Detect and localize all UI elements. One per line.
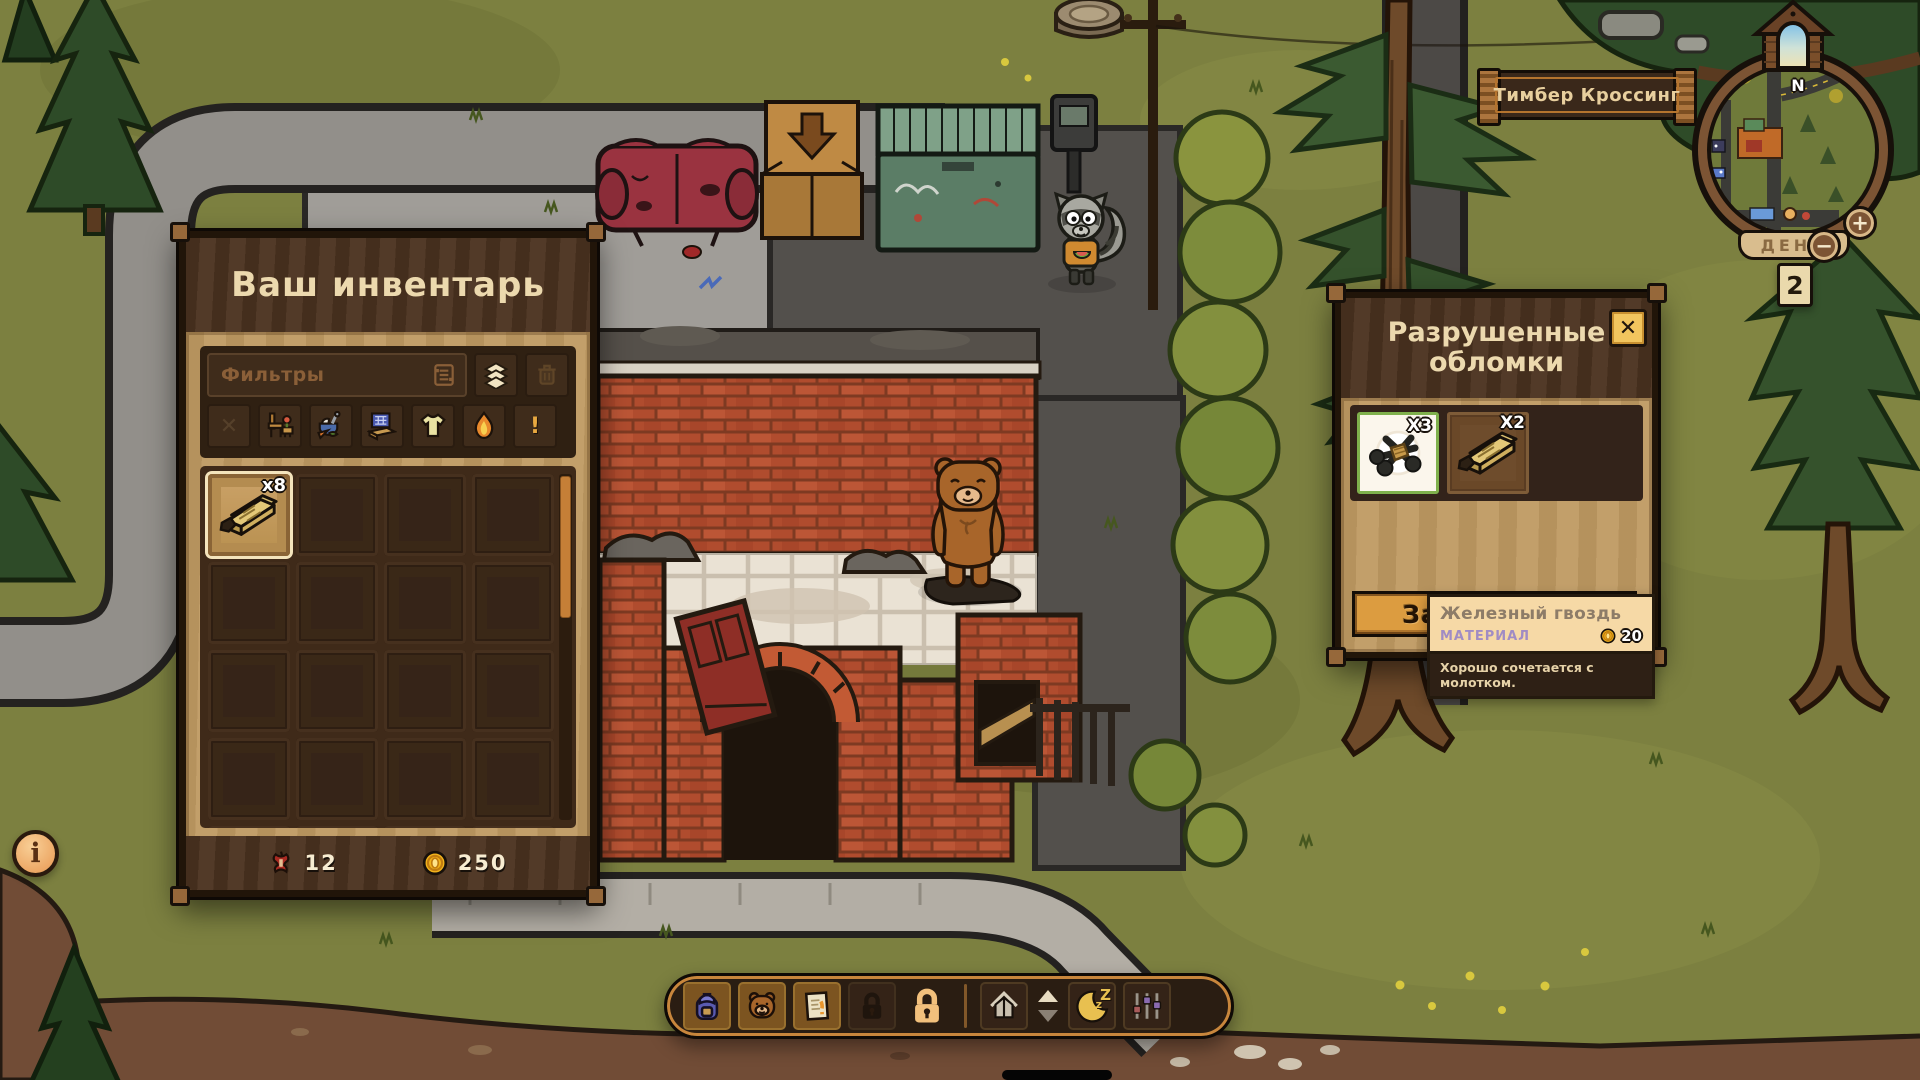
loot-title: Разрушенные обломки bbox=[1372, 318, 1622, 378]
filter-search-bar[interactable]: Фильтры bbox=[207, 353, 467, 397]
loot-body: X3 X2 Железный гвоздь МАТЕРИАЛ 20 Хорошо… bbox=[1341, 398, 1652, 652]
filters-section: Фильтры ✕ bbox=[200, 346, 576, 458]
filter-fuel-button[interactable] bbox=[462, 404, 506, 448]
food-icon bbox=[316, 411, 346, 441]
loot-items-strip: X3 X2 bbox=[1350, 405, 1643, 501]
abandoned-couch bbox=[597, 140, 757, 246]
inventory-slot[interactable] bbox=[296, 474, 378, 556]
inventory-slot[interactable] bbox=[472, 826, 554, 828]
inventory-panel: Ваш инвентарь Фильтры ✕ bbox=[176, 228, 600, 900]
lock-button[interactable] bbox=[903, 982, 951, 1030]
note-icon bbox=[800, 989, 834, 1023]
scrollbar-thumb[interactable] bbox=[560, 476, 571, 618]
bottom-black-bar bbox=[1002, 1070, 1112, 1080]
inventory-body: Фильтры ✕ bbox=[186, 332, 590, 890]
plus-icon: + bbox=[1851, 211, 1869, 235]
inventory-slot[interactable] bbox=[296, 562, 378, 644]
furniture-icon bbox=[265, 411, 295, 441]
minimap[interactable]: N ДЕНЬ 2 + − bbox=[1686, 0, 1910, 312]
clear-filter-icon: ✕ bbox=[220, 414, 238, 439]
filter-food-button[interactable] bbox=[309, 404, 353, 448]
close-button[interactable]: ✕ bbox=[1609, 309, 1647, 347]
inventory-grid-area: x8 bbox=[200, 466, 576, 828]
inventory-scrollbar[interactable] bbox=[559, 474, 572, 820]
inventory-grid: x8 bbox=[208, 474, 554, 828]
inventory-slot[interactable] bbox=[208, 562, 290, 644]
backpack-button[interactable] bbox=[683, 982, 731, 1030]
bottom-toolbar: Z z bbox=[664, 973, 1234, 1039]
inventory-slot[interactable] bbox=[296, 826, 378, 828]
inventory-slot[interactable] bbox=[384, 562, 466, 644]
materials-icon bbox=[367, 411, 397, 441]
filter-clothing-button[interactable] bbox=[411, 404, 455, 448]
item-count-badge: X3 bbox=[1407, 416, 1432, 436]
sliders-icon bbox=[1130, 989, 1164, 1023]
game-screen: Ваш инвентарь Фильтры ✕ bbox=[0, 0, 1920, 1080]
inventory-slot[interactable] bbox=[296, 738, 378, 820]
inventory-slot[interactable] bbox=[208, 826, 290, 828]
floor-view-button[interactable] bbox=[980, 982, 1028, 1030]
minimap-zoom-in-button[interactable]: + bbox=[1843, 206, 1877, 240]
loot-header: Разрушенные обломки bbox=[1341, 298, 1652, 398]
tree-stump bbox=[1056, 0, 1122, 37]
item-count-badge: x8 bbox=[262, 475, 286, 496]
loot-slot-iron-nail[interactable]: X3 bbox=[1357, 412, 1439, 494]
loot-slot-plank[interactable]: X2 bbox=[1447, 412, 1529, 494]
inventory-header: Ваш инвентарь bbox=[186, 238, 590, 332]
tooltip-price: 20 bbox=[1600, 627, 1642, 645]
cardboard-boxes bbox=[762, 102, 862, 238]
clothing-icon bbox=[418, 411, 448, 441]
inventory-footer: 12 250 bbox=[186, 836, 590, 890]
tooltip-note: Хорошо сочетается с молотком. bbox=[1427, 654, 1655, 699]
inventory-slot[interactable] bbox=[208, 650, 290, 732]
inventory-slot[interactable] bbox=[384, 738, 466, 820]
backpack-icon bbox=[690, 989, 724, 1023]
trash-icon bbox=[534, 362, 560, 388]
minus-icon: − bbox=[1815, 234, 1833, 258]
inventory-slot[interactable] bbox=[384, 650, 466, 732]
minimap-birdhouse bbox=[1756, 2, 1830, 70]
info-button[interactable]: i bbox=[12, 830, 59, 877]
toolbar-divider bbox=[964, 984, 967, 1028]
item-tooltip: Железный гвоздь МАТЕРИАЛ 20 Хорошо сочет… bbox=[1427, 594, 1655, 699]
tooltip-item-name: Железный гвоздь bbox=[1440, 604, 1642, 624]
quest-note-button[interactable] bbox=[793, 982, 841, 1030]
inventory-slot-planks[interactable]: x8 bbox=[208, 474, 290, 556]
stack-sort-button[interactable] bbox=[474, 353, 518, 397]
filter-materials-button[interactable] bbox=[360, 404, 404, 448]
coin-count: 250 bbox=[458, 851, 508, 875]
close-icon: ✕ bbox=[1619, 316, 1637, 341]
bear-profile-button[interactable] bbox=[738, 982, 786, 1030]
trash-button[interactable] bbox=[525, 353, 569, 397]
filter-quest-button[interactable]: ! bbox=[513, 404, 557, 448]
location-banner: Тимбер Кроссинг bbox=[1488, 70, 1686, 120]
loot-panel: Разрушенные обломки ✕ X3 X2 Железный гво… bbox=[1332, 289, 1661, 661]
lock-icon bbox=[905, 984, 949, 1028]
filters-label: Фильтры bbox=[221, 364, 431, 386]
tooltip-category: МАТЕРИАЛ bbox=[1440, 629, 1530, 644]
inventory-slot[interactable] bbox=[472, 562, 554, 644]
apple-core-icon bbox=[268, 850, 294, 876]
minimap-north-label: N bbox=[1686, 76, 1910, 95]
inventory-slot[interactable] bbox=[296, 650, 378, 732]
floor-up-button[interactable] bbox=[1038, 990, 1058, 1002]
house-icon bbox=[987, 989, 1021, 1023]
sleep-z-glyph: z bbox=[1096, 998, 1102, 1011]
filter-furniture-button[interactable] bbox=[258, 404, 302, 448]
coin-icon bbox=[422, 850, 448, 876]
inventory-slot[interactable] bbox=[472, 650, 554, 732]
coin-count-display: 250 bbox=[422, 850, 508, 876]
apple-count: 12 bbox=[304, 851, 337, 875]
item-count-badge: X2 bbox=[1500, 413, 1525, 433]
minimap-day-number: 2 bbox=[1777, 263, 1813, 307]
info-icon: i bbox=[30, 838, 40, 869]
floor-down-button[interactable] bbox=[1038, 1010, 1058, 1022]
layers-icon bbox=[482, 361, 510, 389]
inventory-slot[interactable] bbox=[472, 474, 554, 556]
apple-count-display: 12 bbox=[268, 850, 337, 876]
inventory-slot[interactable] bbox=[384, 474, 466, 556]
inventory-title: Ваш инвентарь bbox=[231, 265, 545, 305]
minimap-zoom-out-button[interactable]: − bbox=[1807, 229, 1841, 263]
inventory-slot[interactable] bbox=[384, 826, 466, 828]
dumpster bbox=[878, 106, 1038, 250]
lock-icon bbox=[855, 989, 889, 1023]
sleep-button[interactable]: Z z bbox=[1068, 982, 1116, 1030]
floor-switcher bbox=[1035, 982, 1061, 1030]
inventory-slot[interactable] bbox=[472, 738, 554, 820]
sort-list-icon bbox=[431, 362, 457, 388]
tooltip-price-value: 20 bbox=[1621, 627, 1642, 645]
flame-icon bbox=[469, 411, 499, 441]
quest-filter-icon: ! bbox=[530, 414, 540, 439]
ambience-sliders-button[interactable] bbox=[1123, 982, 1171, 1030]
locked-slot-button bbox=[848, 982, 896, 1030]
inventory-slot[interactable] bbox=[208, 738, 290, 820]
filter-clear-button[interactable]: ✕ bbox=[207, 404, 251, 448]
location-name: Тимбер Кроссинг bbox=[1494, 85, 1681, 106]
coin-icon bbox=[1600, 628, 1616, 644]
day-value: 2 bbox=[1786, 271, 1803, 300]
bear-head-icon bbox=[745, 989, 779, 1023]
